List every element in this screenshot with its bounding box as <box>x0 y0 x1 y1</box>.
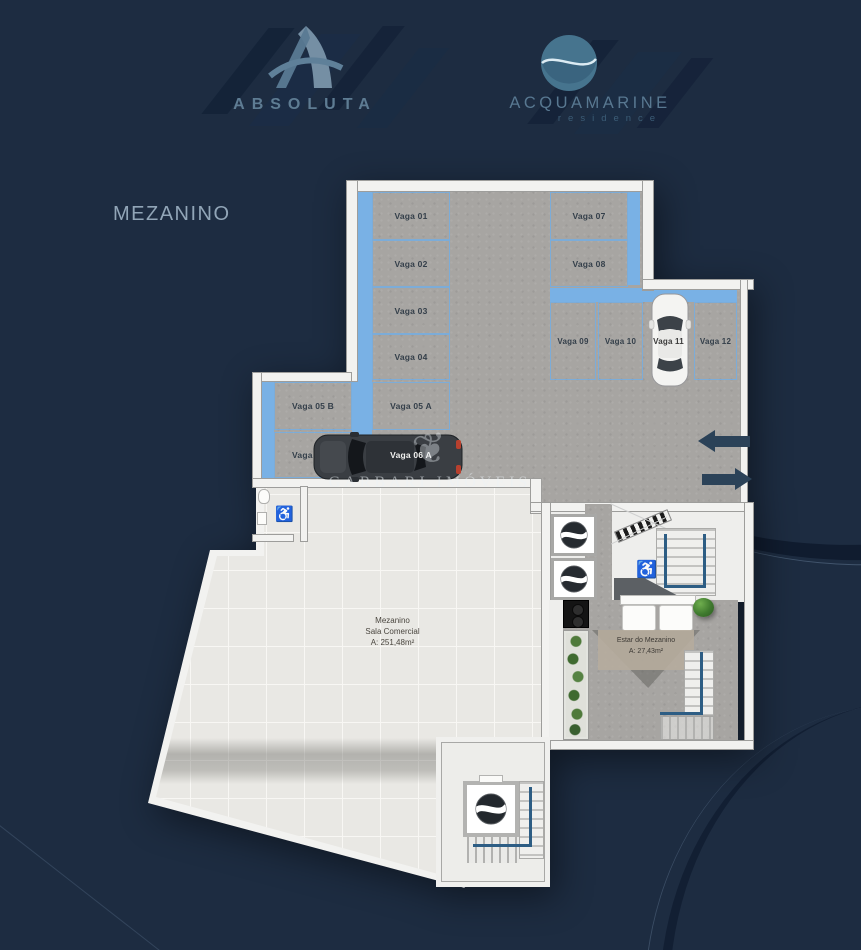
stall-vaga-08: Vaga 08 <box>550 240 628 287</box>
stall-vaga-06a: Vaga 06 A <box>372 432 450 478</box>
wall-bathroom-bottom <box>252 534 294 542</box>
stall-vaga-10: Vaga 10 <box>598 302 643 380</box>
planter-strip <box>563 630 589 740</box>
wall-bathroom-right <box>300 486 308 542</box>
wall-stairs-bottom <box>541 740 754 750</box>
elevator-lower-door <box>479 775 503 783</box>
entry-arrow <box>698 430 750 452</box>
estar-railing-h <box>660 712 703 715</box>
stall-vaga-09: Vaga 09 <box>550 302 596 380</box>
estar-label: Estar do Mezanino A: 27,43m² <box>592 636 700 657</box>
elevator-icon <box>473 791 509 827</box>
cooktop <box>563 600 589 628</box>
wall-stairs-top <box>530 502 754 512</box>
lower-railing-v <box>529 787 532 847</box>
exit-arrow <box>702 468 752 490</box>
stall-vaga-01: Vaga 01 <box>372 192 450 240</box>
estar-staircase <box>684 650 714 716</box>
arrow-left-icon <box>698 430 715 452</box>
wall-stairs-right <box>744 502 754 750</box>
stall-vaga-12: Vaga 12 <box>694 302 737 380</box>
wheelchair-icon: ♿ <box>636 560 657 580</box>
blue-strip-right <box>628 192 640 285</box>
estar-railing-v <box>700 652 703 714</box>
elevator-icon <box>558 563 590 595</box>
stall-vaga-02: Vaga 02 <box>372 240 450 287</box>
plant <box>693 598 714 617</box>
lower-railing-h <box>473 844 532 847</box>
elevator-icon <box>558 519 590 551</box>
wall-garage-right-upper <box>642 180 654 291</box>
estar-stair-lower <box>660 716 714 740</box>
wall-garage-widen-top <box>642 279 754 290</box>
sala-label: Mezanino Sala Comercial A: 251,48m² <box>335 615 450 649</box>
stall-vaga-03: Vaga 03 <box>372 287 450 334</box>
lower-stair-block <box>441 742 545 882</box>
estar-side-strip <box>549 600 563 740</box>
sink <box>257 512 267 525</box>
sofa <box>620 595 696 633</box>
wall-extension-left <box>252 372 262 486</box>
wheelchair-icon: ♿ <box>275 505 294 523</box>
elevator-upper-2 <box>551 558 597 600</box>
floorplan: Vaga 01 Vaga 02 Vaga 03 Vaga 04 Vaga 07 … <box>0 0 861 950</box>
floorplan-page: ABSOLUTA ACQUAMARINE residence MEZANINO <box>0 0 861 950</box>
stall-vaga-04: Vaga 04 <box>372 334 450 380</box>
wall-garage-left <box>346 180 358 382</box>
stall-vaga-11: Vaga 11 <box>646 302 691 380</box>
wall-extension-top <box>252 372 352 382</box>
arrow-right-icon <box>735 468 752 490</box>
main-staircase-railing <box>664 534 706 588</box>
stall-vaga-05a: Vaga 05 A <box>372 382 450 430</box>
stall-vaga-05b: Vaga 05 B <box>274 382 352 430</box>
elevator-upper-1 <box>551 514 597 556</box>
stall-vaga-07: Vaga 07 <box>550 192 628 240</box>
lower-railing-bars <box>467 837 519 863</box>
wall-garage-top <box>346 180 654 192</box>
blue-strip-extension <box>262 382 274 478</box>
elevator-lower-frame <box>463 781 519 837</box>
toilet <box>258 489 270 504</box>
